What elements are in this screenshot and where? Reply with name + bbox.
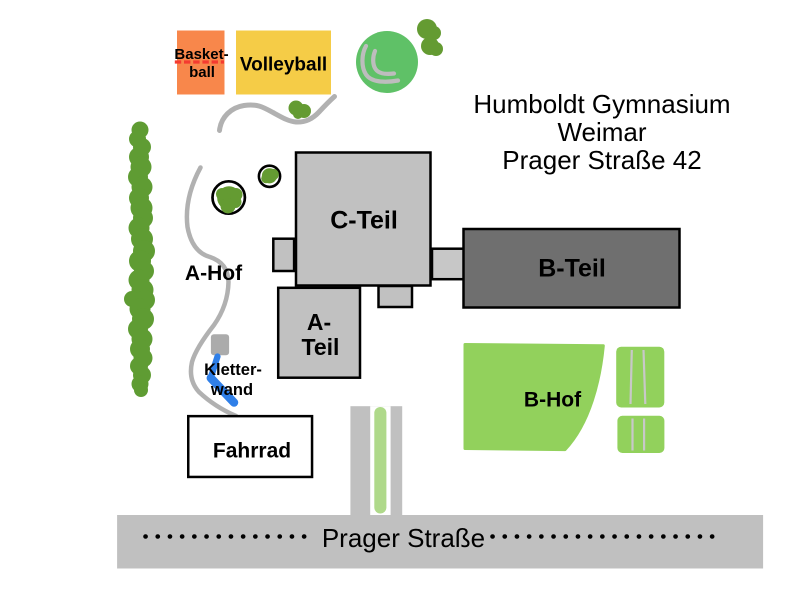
svg-text:Prager Straße 42: Prager Straße 42 xyxy=(502,145,701,175)
svg-text:Prager Straße: Prager Straße xyxy=(322,523,485,553)
svg-text:B-Hof: B-Hof xyxy=(524,389,582,412)
svg-text:Volleyball: Volleyball xyxy=(240,55,327,76)
svg-text:ball: ball xyxy=(189,64,215,81)
svg-text:C-Teil: C-Teil xyxy=(330,207,398,235)
svg-text:A-: A- xyxy=(307,309,331,335)
svg-text:Fahrrad: Fahrrad xyxy=(213,440,291,463)
svg-text:B-Teil: B-Teil xyxy=(538,255,606,283)
svg-text:wand: wand xyxy=(210,381,253,399)
svg-text:Humboldt Gymnasium: Humboldt Gymnasium xyxy=(473,89,730,119)
svg-text:A-Hof: A-Hof xyxy=(185,262,243,285)
svg-text:Basket-: Basket- xyxy=(174,46,228,63)
svg-text:Teil: Teil xyxy=(302,334,340,360)
svg-text:Kletter-: Kletter- xyxy=(204,361,262,379)
svg-text:Weimar: Weimar xyxy=(557,117,646,147)
